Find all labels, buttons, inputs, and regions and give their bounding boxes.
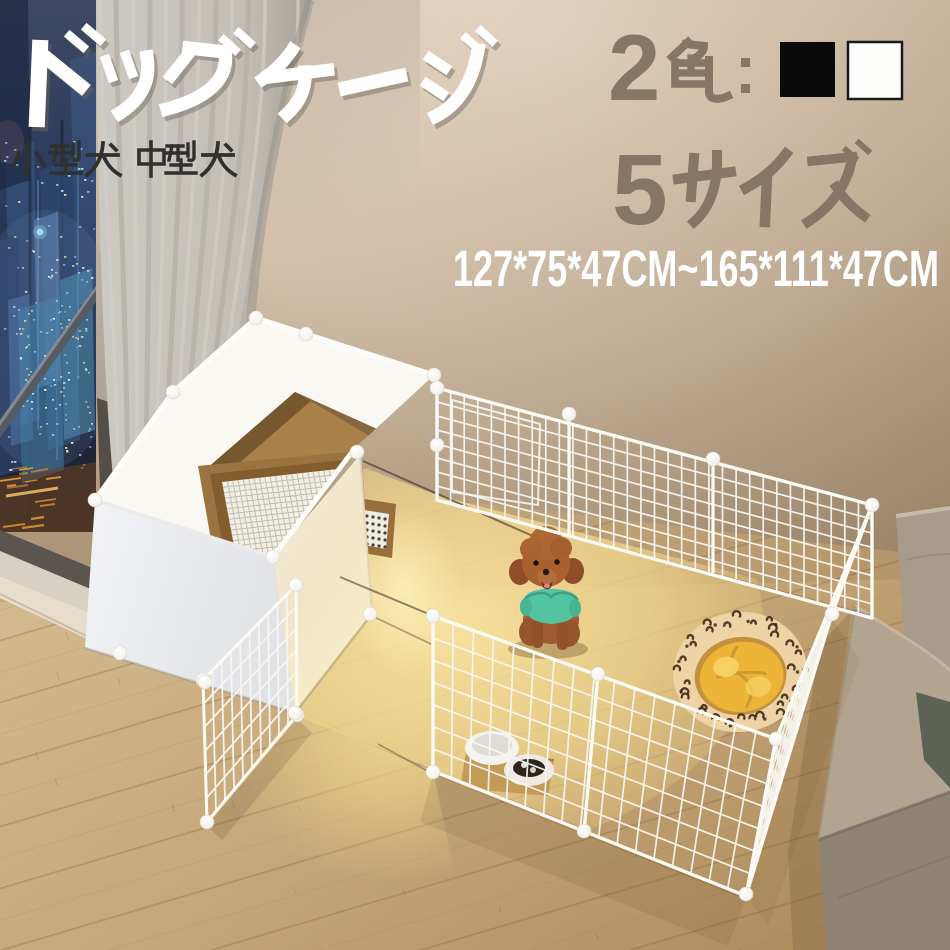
svg-text:127*75*47CM~165*111*47CM: 127*75*47CM~165*111*47CM bbox=[453, 240, 939, 297]
svg-text:2: 2 bbox=[608, 15, 660, 120]
svg-text:5: 5 bbox=[612, 134, 668, 246]
